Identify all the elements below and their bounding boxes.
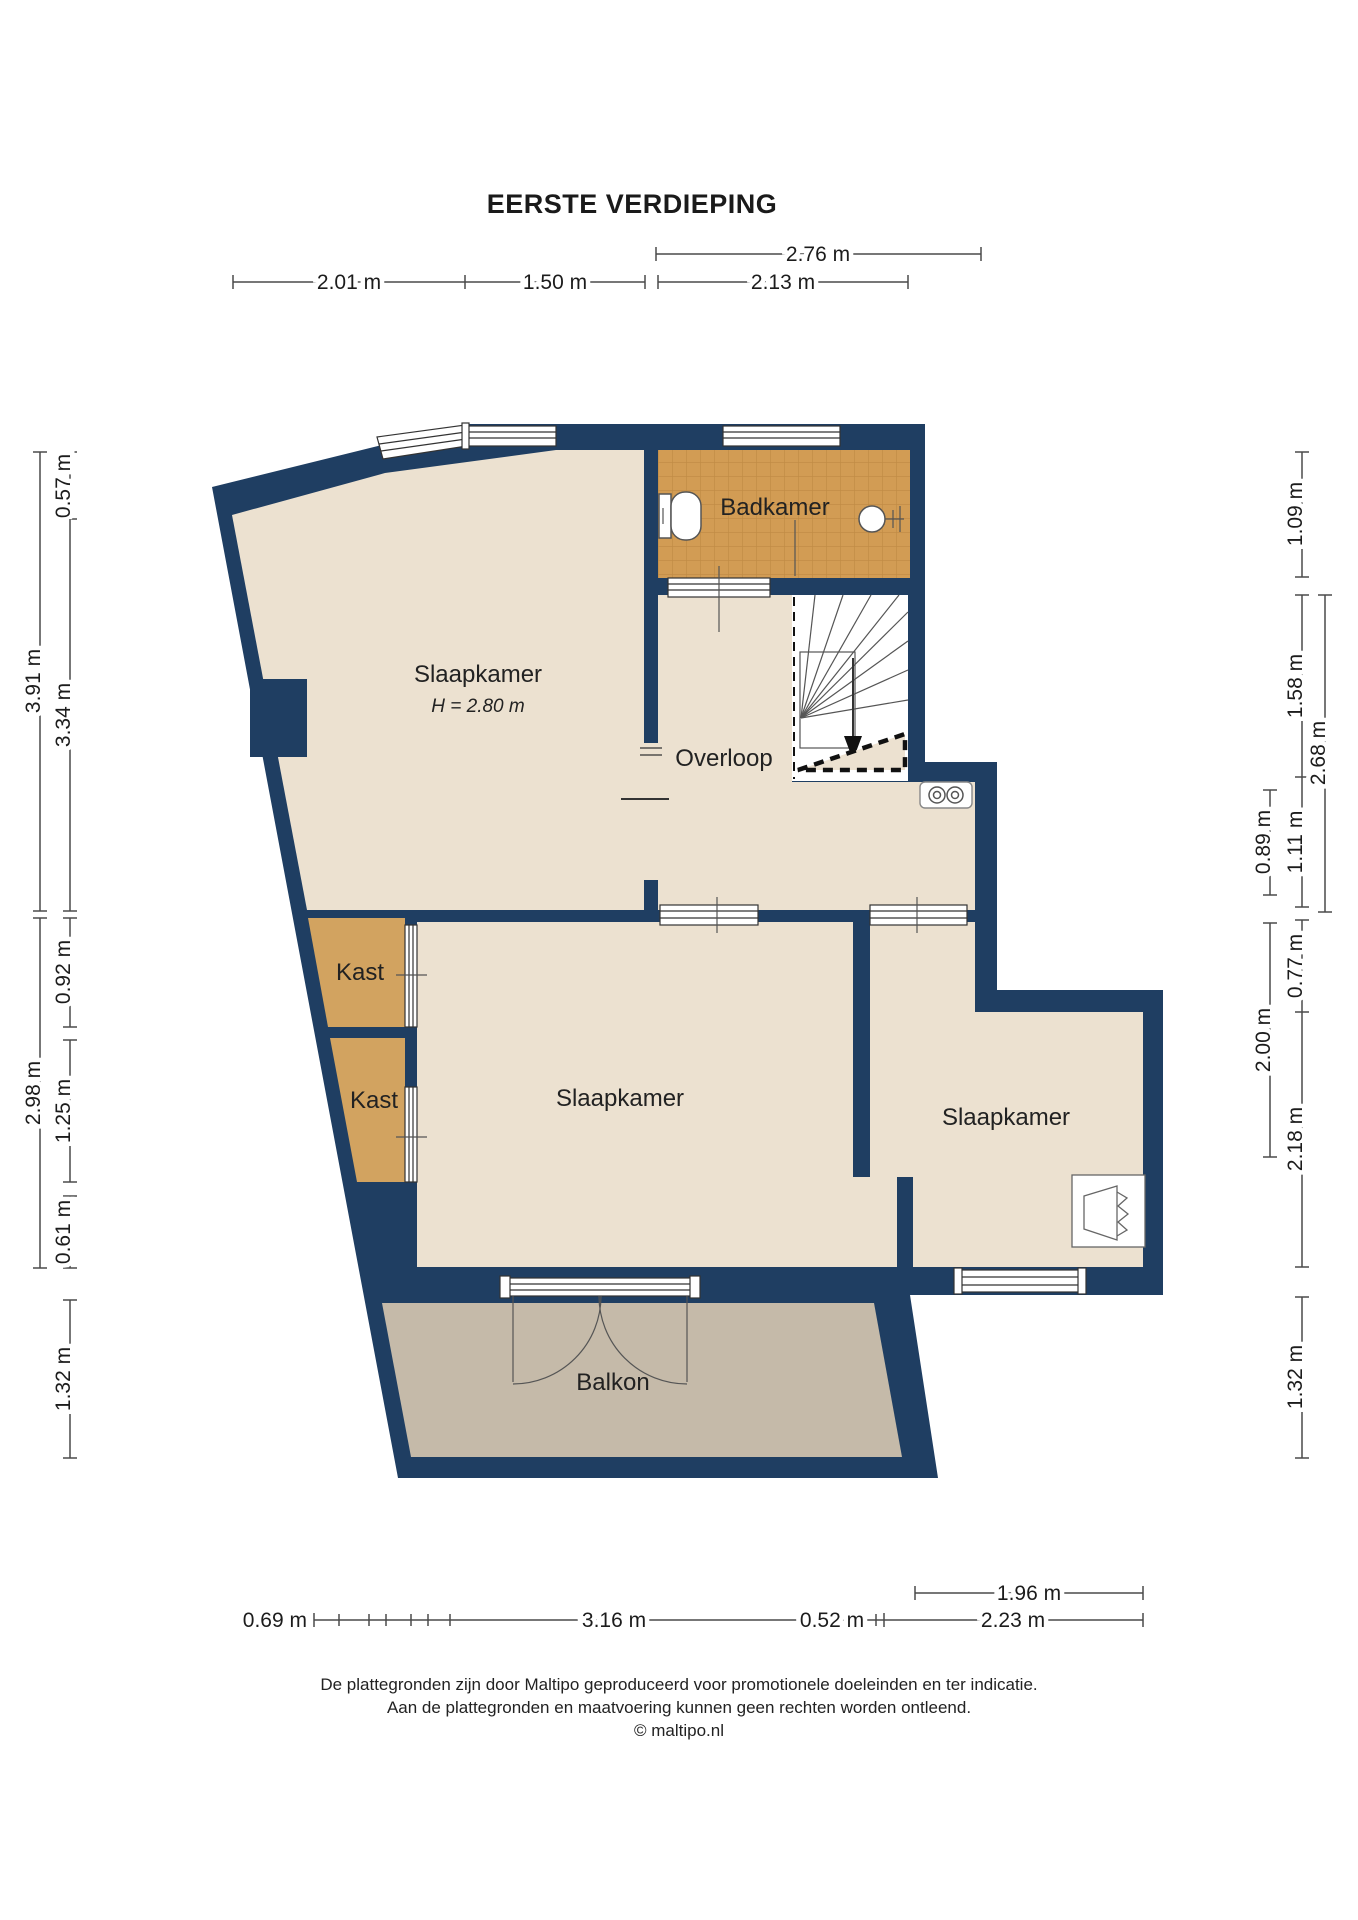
dim-bottom-2-23: 2.23 m xyxy=(981,1609,1045,1632)
label-kast-2: Kast xyxy=(350,1087,398,1114)
svg-text:1.32 m: 1.32 m xyxy=(1284,1345,1307,1409)
svg-text:2.68 m: 2.68 m xyxy=(1307,721,1330,785)
dim-right-1-09: 1.09 m xyxy=(1284,452,1309,577)
dim-top-1-50: 1.50 m xyxy=(465,271,645,294)
window-badkamer xyxy=(723,426,840,446)
svg-text:1.09 m: 1.09 m xyxy=(1284,482,1307,546)
svg-text:2.01 m: 2.01 m xyxy=(317,271,381,294)
svg-text:2.00 m: 2.00 m xyxy=(1252,1008,1275,1072)
dim-top-2-01: 2.01 m xyxy=(233,271,465,294)
dim-right-1-58: 1.58 m xyxy=(1284,595,1309,777)
dim-right-2-00: 2.00 m xyxy=(1252,923,1277,1157)
wardrobe-icon xyxy=(1072,1175,1145,1247)
svg-text:1.25 m: 1.25 m xyxy=(52,1079,75,1143)
svg-text:0.57 m: 0.57 m xyxy=(52,454,75,518)
dim-bottom-0-52: 0.52 m xyxy=(800,1609,864,1632)
svg-text:0.77 m: 0.77 m xyxy=(1284,934,1307,998)
dim-left-1-25: 1.25 m xyxy=(52,1040,77,1182)
dim-right-1-32: 1.32 m xyxy=(1284,1297,1309,1458)
wall-notch xyxy=(250,679,307,757)
label-badkamer: Badkamer xyxy=(720,494,829,521)
label-balkon: Balkon xyxy=(576,1369,649,1396)
window-topleft-horizontal xyxy=(462,423,556,449)
dim-right-0-89: 0.89 m xyxy=(1252,790,1277,895)
svg-text:1.58 m: 1.58 m xyxy=(1284,654,1307,718)
dim-bottom-0-69: 0.69 m xyxy=(243,1609,307,1632)
dim-left-0-57: 0.57 m xyxy=(52,452,77,519)
svg-text:0.61 m: 0.61 m xyxy=(52,1200,75,1264)
floorplan-canvas: EERSTE VERDIEPING xyxy=(0,0,1358,1920)
page-title: EERSTE VERDIEPING xyxy=(487,189,778,219)
footer-line-1: De plattegronden zijn door Maltipo gepro… xyxy=(320,1675,1037,1694)
svg-text:3.34 m: 3.34 m xyxy=(52,683,75,747)
footer-line-2: Aan de plattegronden en maatvoering kunn… xyxy=(387,1698,971,1717)
label-slaapkamer-topleft: Slaapkamer xyxy=(414,661,542,688)
svg-text:2.13 m: 2.13 m xyxy=(751,271,815,294)
dim-left-3-91: 3.91 m xyxy=(22,452,47,911)
svg-text:2.76 m: 2.76 m xyxy=(786,243,850,266)
svg-text:0.89 m: 0.89 m xyxy=(1252,810,1275,874)
label-slaapkamer-middle: Slaapkamer xyxy=(556,1085,684,1112)
dim-right-2-68: 2.68 m xyxy=(1307,595,1332,912)
svg-text:3.91 m: 3.91 m xyxy=(22,649,45,713)
window-slaapkamer-right xyxy=(954,1268,1086,1294)
dim-bottom-3-16: 3.16 m xyxy=(582,1609,646,1632)
dim-right-2-18: 2.18 m xyxy=(1284,1012,1309,1267)
svg-text:1.32 m: 1.32 m xyxy=(52,1347,75,1411)
label-overloop: Overloop xyxy=(675,745,772,772)
label-kast-1: Kast xyxy=(336,959,384,986)
dim-bottom-1-96: 1.96 m xyxy=(915,1582,1143,1605)
label-slaapkamer-right: Slaapkamer xyxy=(942,1104,1070,1131)
svg-text:1.11 m: 1.11 m xyxy=(1284,811,1307,874)
dim-top-2-13: 2.13 m xyxy=(658,271,908,294)
dim-left-1-32: 1.32 m xyxy=(52,1300,77,1458)
dim-left-0-61: 0.61 m xyxy=(52,1196,77,1268)
dim-left-3-34: 3.34 m xyxy=(52,519,77,911)
dim-right-1-11: 1.11 m xyxy=(1284,777,1309,907)
dim-left-2-98: 2.98 m xyxy=(22,918,47,1268)
footer-line-3: © maltipo.nl xyxy=(634,1721,724,1740)
svg-text:1.50 m: 1.50 m xyxy=(523,271,587,294)
label-slaapkamer-topleft-height: H = 2.80 m xyxy=(431,696,524,717)
svg-text:0.92 m: 0.92 m xyxy=(52,940,75,1004)
svg-text:2.98 m: 2.98 m xyxy=(22,1061,45,1125)
toilet-icon xyxy=(659,492,701,540)
dim-top-2-76: 2.76 m xyxy=(656,243,981,266)
dim-left-0-92: 0.92 m xyxy=(52,918,77,1027)
svg-text:1.96 m: 1.96 m xyxy=(997,1582,1061,1605)
dim-bottom-row: 0.69 m 3.16 m 0.52 m 2.23 m xyxy=(243,1609,1143,1632)
meter-box-icon xyxy=(920,782,972,808)
svg-text:2.18 m: 2.18 m xyxy=(1284,1107,1307,1171)
dim-right-0-77: 0.77 m xyxy=(1284,920,1309,1012)
